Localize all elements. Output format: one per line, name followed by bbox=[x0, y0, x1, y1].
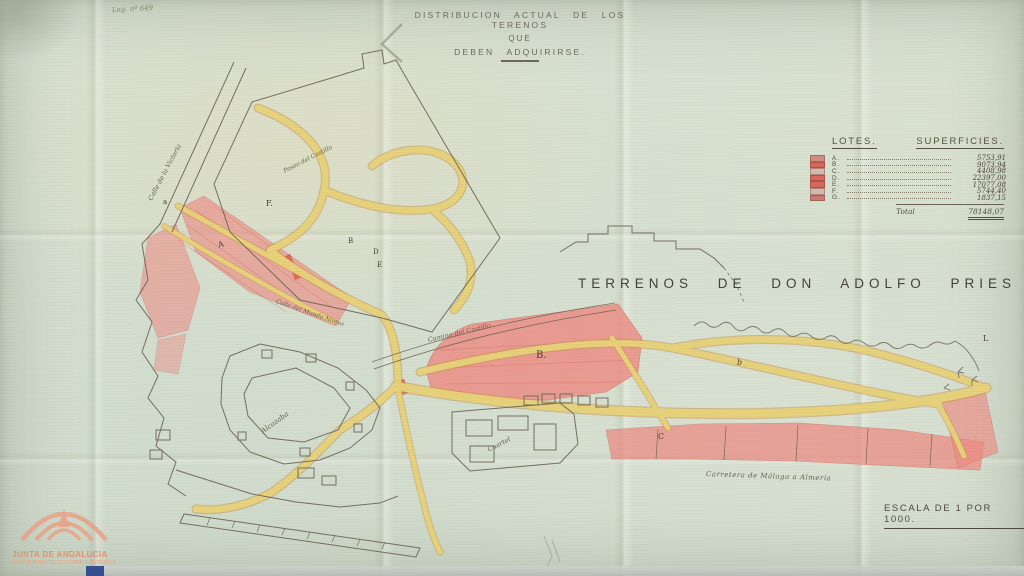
lot-swatch bbox=[810, 188, 825, 195]
title-line-2: QUE bbox=[385, 34, 655, 43]
legend-total-row: Total 78148,07 bbox=[896, 204, 1004, 220]
lot-swatch bbox=[810, 155, 825, 162]
dotted-leader bbox=[847, 188, 951, 193]
lot-marker-C: C bbox=[658, 432, 664, 441]
scan-edge-strip bbox=[84, 566, 1024, 576]
map-title: DISTRIBUCION ACTUAL DE LOS TERENOS QUE D… bbox=[385, 10, 655, 62]
dotted-leader bbox=[847, 175, 951, 180]
lot-swatch bbox=[810, 195, 825, 202]
junta-andalucia-watermark: JUNTA DE ANDALUCIA CONSEJERÍA DE CULTURA… bbox=[12, 494, 142, 566]
dotted-leader bbox=[847, 168, 951, 173]
legend-row: G. 1837,15 bbox=[810, 195, 1006, 202]
watermark-title: JUNTA DE ANDALUCIA bbox=[12, 550, 142, 559]
lot-marker-D: D bbox=[373, 248, 379, 256]
legend-header: LOTES. SUPERFICIES. bbox=[810, 136, 1006, 149]
lot-swatch bbox=[810, 168, 825, 175]
lot-marker-a: a bbox=[163, 198, 167, 206]
dotted-leader bbox=[847, 161, 951, 166]
lot-marker-B-big: B. bbox=[536, 350, 547, 361]
title-line-1: DISTRIBUCION ACTUAL DE LOS TERENOS bbox=[385, 10, 655, 30]
lot-area: 1837,15 bbox=[956, 194, 1006, 202]
lot-marker-f: F. bbox=[266, 199, 273, 208]
lot-swatch bbox=[810, 175, 825, 182]
title-line-3: DEBEN ADQUIRIRSE. bbox=[385, 47, 655, 57]
legend-total-label: Total bbox=[896, 207, 915, 216]
scan-edge-blue-chip bbox=[86, 566, 104, 576]
dotted-leader bbox=[847, 194, 951, 199]
legend-lotes-superficies: LOTES. SUPERFICIES. A. 5753,91 B. 9073,9… bbox=[810, 136, 1006, 220]
lot-marker-L: L bbox=[983, 334, 988, 343]
dotted-leader bbox=[847, 155, 951, 160]
lot-marker-E: E bbox=[377, 261, 382, 269]
lot-marker-b: b bbox=[737, 358, 742, 367]
lot-letter: G. bbox=[832, 194, 845, 201]
junta-arch-logo-icon bbox=[12, 494, 116, 544]
scale-label: ESCALA DE 1 POR 1000. bbox=[884, 503, 1024, 529]
lot-swatch bbox=[810, 162, 825, 169]
legend-header-superficies: SUPERFICIES. bbox=[916, 136, 1004, 149]
legend-header-lotes: LOTES. bbox=[832, 136, 877, 149]
lot-swatch bbox=[810, 181, 825, 188]
terrain-owner-label: TERRENOS DE DON ADOLFO PRIES bbox=[578, 276, 1016, 291]
legend-rows: A. 5753,91 B. 9073,94 C. 4408,98 D. 223 bbox=[810, 155, 1006, 201]
lot-marker-B-small: B bbox=[348, 237, 353, 245]
title-underline bbox=[501, 60, 539, 62]
scanned-map-document: Leg. nº 649 DISTRIBUCION ACTUAL DE LOS T… bbox=[0, 0, 1024, 576]
dotted-leader bbox=[847, 181, 951, 186]
legend-total-value: 78148,07 bbox=[968, 207, 1004, 220]
